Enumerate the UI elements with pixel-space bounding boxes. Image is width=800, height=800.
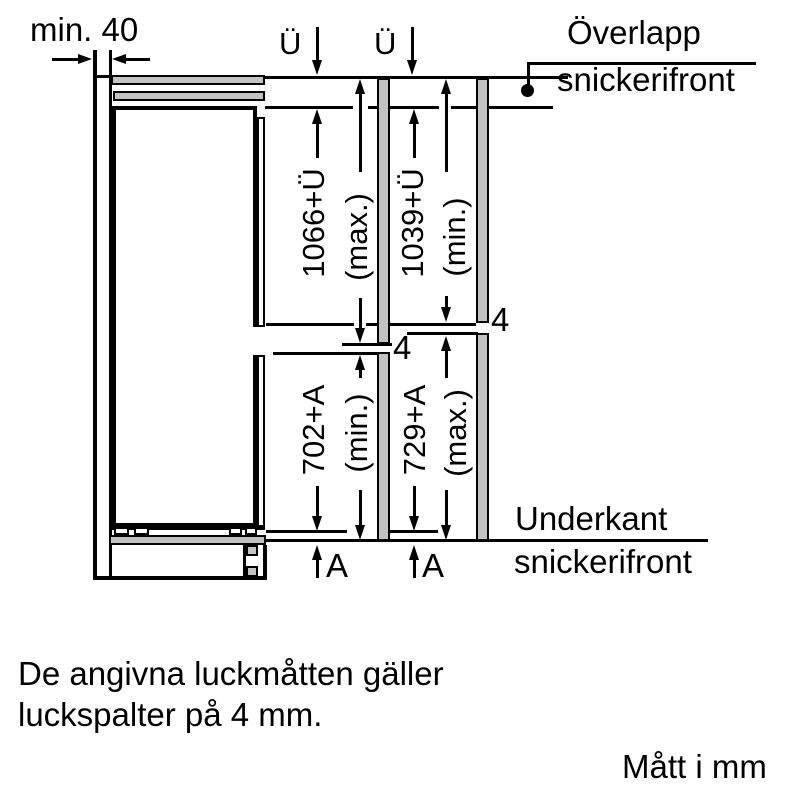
gap-label-variant2: 4 <box>491 303 509 338</box>
appliance-plinth <box>109 535 266 545</box>
front-top-line <box>264 76 568 79</box>
overlap-caption-line2: snickerifront <box>557 63 735 98</box>
dim-shaft <box>316 486 319 518</box>
dim-shaft <box>445 91 448 172</box>
appliance-door-top-line <box>368 106 377 109</box>
split-reference-line <box>366 323 377 326</box>
note-line2: luckspalter på 4 mm. <box>18 698 322 733</box>
u2-arrowhead <box>407 60 417 75</box>
min40-arrow-shaft <box>125 58 150 61</box>
dim-arrowhead <box>312 516 322 531</box>
appliance-door-top-line <box>451 106 476 109</box>
door-hinge-block <box>229 527 242 535</box>
dim-arrowhead <box>355 525 365 540</box>
note-line1: De angivna luckmåtten gäller <box>18 657 444 692</box>
dim-shaft <box>413 121 416 158</box>
overhang-arrow-shaft <box>413 558 416 578</box>
front-panel-variant1-lower <box>377 352 390 541</box>
dim-shaft <box>359 367 362 378</box>
door-hinge-block <box>245 527 257 535</box>
door-hinge-block <box>114 527 129 535</box>
side-clearance-label: min. 40 <box>30 13 138 48</box>
dim-shaft <box>316 121 319 158</box>
appliance-top-panel <box>111 75 265 85</box>
overhang-arrow-shaft <box>316 558 319 578</box>
cabinet-top-edge <box>93 75 112 78</box>
panel2-gap-bottom-line <box>407 332 478 335</box>
cabinet-left-wall <box>93 50 97 580</box>
door-front-lower <box>257 355 265 527</box>
dim-shaft <box>359 91 362 172</box>
door-hinge-block <box>134 527 149 535</box>
overhang-label-1: A <box>326 549 348 584</box>
dim-arrowhead <box>441 307 451 322</box>
dim-arrowhead <box>409 516 419 531</box>
appliance-foot <box>246 545 258 556</box>
dim-shaft <box>413 486 416 518</box>
bottom-caption-line1: Underkant <box>515 502 667 537</box>
cabinet-bottom-edge <box>93 576 267 580</box>
cabinet-right-lower-edge <box>263 545 267 578</box>
min40-arrow-shaft <box>52 58 78 61</box>
split-reference-line <box>266 323 354 326</box>
min40-arrowhead-left <box>112 54 126 64</box>
overlap-symbol-2: Ü <box>374 28 396 61</box>
overlap-caption-line1: Överlapp <box>567 16 701 51</box>
front-panel-variant2-upper <box>476 78 489 323</box>
overhang-label-2: A <box>422 549 444 584</box>
dim-shaft <box>445 490 448 527</box>
units-label: Mått i mm <box>622 750 767 785</box>
appliance-door-top-line <box>489 106 553 109</box>
bottom-caption-line2: snickerifront <box>514 545 692 580</box>
dim-shaft <box>359 490 362 527</box>
appliance-foot <box>246 566 258 577</box>
installation-diagram: min. 40 Ü Ü Överlapp snickerifront 4 4 1… <box>0 0 800 800</box>
u1-arrowhead <box>312 60 322 75</box>
leader-dot <box>521 84 534 97</box>
min40-arrowhead-right <box>78 54 92 64</box>
gap-label-variant1: 4 <box>393 331 411 366</box>
appliance-door-bottom-line <box>266 530 347 533</box>
door-front-upper <box>257 117 265 327</box>
u2-arrow-shaft <box>411 27 414 61</box>
appliance-door-body <box>112 106 257 527</box>
front-panel-variant1-upper <box>377 78 390 344</box>
overlap-symbol-1: Ü <box>279 28 301 61</box>
split-reference-line <box>390 323 476 326</box>
dim-arrowhead <box>355 328 365 343</box>
appliance-door-top-line <box>265 106 353 109</box>
dim-arrowhead <box>441 525 451 540</box>
u1-arrow-shaft <box>316 27 319 61</box>
front-panel-variant2-lower <box>476 333 489 541</box>
dim-shaft <box>445 348 448 378</box>
dim-shaft <box>359 298 362 331</box>
appliance-top-panel-2 <box>113 91 265 101</box>
